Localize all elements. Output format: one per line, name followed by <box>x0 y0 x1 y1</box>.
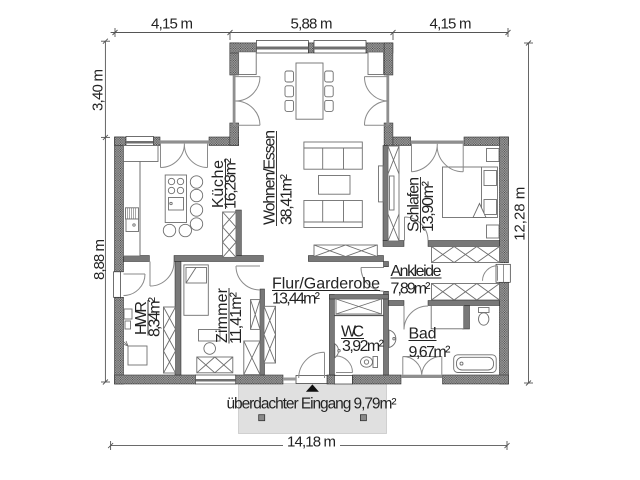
svg-text:16,28m²: 16,28m² <box>223 157 240 209</box>
svg-text:Wohnen/Essen: Wohnen/Essen <box>262 130 279 225</box>
svg-text:Bad: Bad <box>409 326 437 343</box>
svg-text:8,88 m: 8,88 m <box>91 239 108 280</box>
svg-text:13,44m²: 13,44m² <box>272 291 321 308</box>
svg-text:5,88 m: 5,88 m <box>291 16 333 33</box>
svg-text:8,34m²: 8,34m² <box>147 296 164 337</box>
svg-text:3,92m²: 3,92m² <box>342 338 385 355</box>
svg-text:4,15 m: 4,15 m <box>151 16 193 33</box>
svg-text:7,89m²: 7,89m² <box>391 281 432 298</box>
svg-text:4,15 m: 4,15 m <box>430 16 472 33</box>
svg-text:überdachter Eingang 9,79m²: überdachter Eingang 9,79m² <box>227 396 397 413</box>
svg-text:14,18 m: 14,18 m <box>287 434 336 451</box>
svg-text:12,28 m: 12,28 m <box>512 187 529 241</box>
svg-text:38,41m²: 38,41m² <box>279 173 296 225</box>
svg-text:11,41m²: 11,41m² <box>228 291 245 344</box>
svg-text:13,90m²: 13,90m² <box>420 180 437 232</box>
svg-text:Ankleide: Ankleide <box>391 263 442 280</box>
svg-text:3,40 m: 3,40 m <box>90 69 107 111</box>
svg-text:9,67m²: 9,67m² <box>409 344 452 361</box>
